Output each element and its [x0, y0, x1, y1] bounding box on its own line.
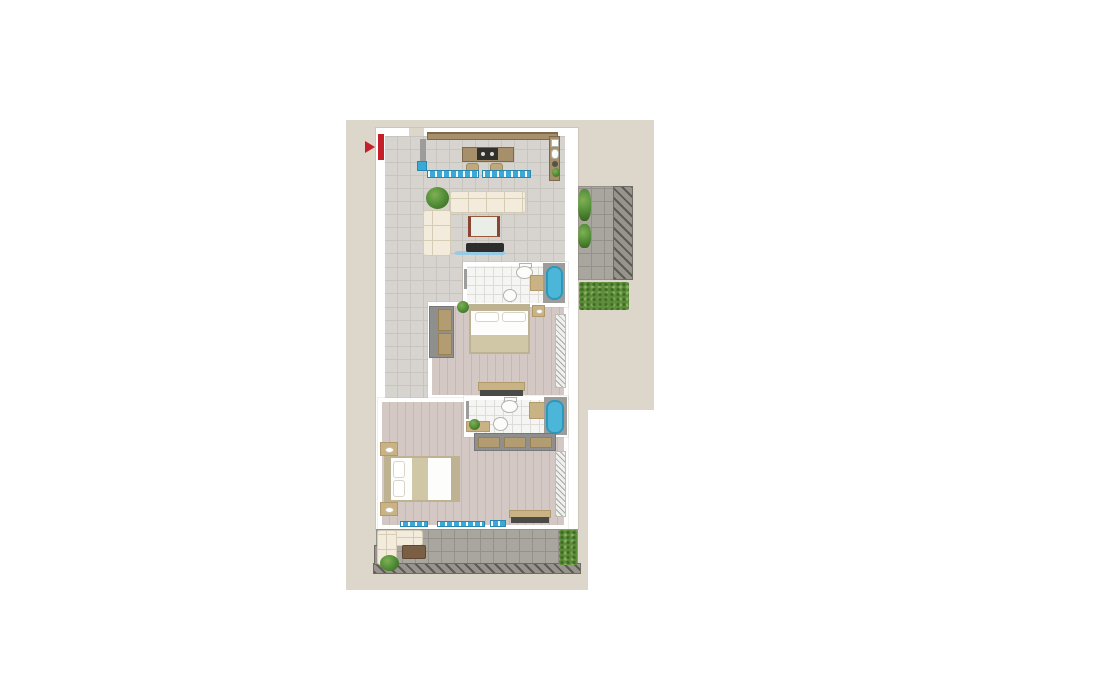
radiator: [555, 451, 566, 517]
bathroom2-door: [466, 401, 469, 419]
lamp-icon: [536, 309, 543, 314]
living-room-floor: [385, 266, 463, 306]
wardrobe-door: [438, 333, 452, 355]
blanket: [412, 458, 428, 500]
balcony-plant-icon: [578, 189, 591, 221]
kitchen-plant-icon: [552, 168, 560, 177]
sink-icon: [503, 289, 517, 302]
coffee-desk: [468, 216, 500, 237]
bedroom1-plant-icon: [457, 301, 469, 313]
bathtub-icon: [546, 400, 564, 434]
pillow: [393, 480, 405, 497]
lamp-icon: [385, 507, 394, 513]
sofa: [450, 191, 526, 213]
headboard: [386, 458, 391, 500]
toilet-icon: [501, 400, 518, 413]
window-glass: [400, 521, 428, 527]
kitchen-appliance-icon: [551, 139, 559, 147]
master-bench-front: [511, 517, 549, 523]
entrance-door-marker: [378, 134, 384, 160]
nightstand: [380, 502, 398, 516]
bathroom2-plant-icon: [469, 419, 480, 430]
floor-plan-canvas: [0, 0, 1096, 693]
master-bed: [384, 456, 460, 502]
glass-counter: [482, 170, 531, 178]
hallway-floor: [385, 306, 430, 398]
glass-counter: [427, 170, 479, 178]
sofa-2: [423, 210, 451, 256]
glass-counter-end: [417, 161, 427, 171]
wardrobe-door: [504, 437, 526, 448]
terrace-hedge: [559, 530, 577, 565]
terrace-plant-icon: [380, 555, 399, 571]
bedroom1-bench-front: [480, 390, 523, 396]
pillow: [475, 312, 499, 322]
window-glass: [490, 520, 506, 527]
kitchen-hob-icon: [552, 161, 558, 167]
wardrobe-door: [478, 437, 500, 448]
pillow: [502, 312, 526, 322]
terrace-table: [402, 545, 426, 559]
headboard: [471, 306, 528, 311]
bed-foot-board: [451, 458, 458, 500]
wardrobe-door: [530, 437, 552, 448]
burner-icon: [490, 152, 494, 156]
side-hedge: [579, 282, 629, 310]
burner-icon: [481, 152, 485, 156]
kitchen-wall-counter: [427, 132, 558, 140]
terrace-railing: [373, 563, 581, 574]
nightstand: [380, 442, 398, 456]
entrance-arrow-icon: [365, 141, 375, 153]
blanket: [471, 333, 528, 352]
window-glass: [437, 521, 485, 527]
wardrobe-door: [438, 309, 452, 331]
pillow: [393, 461, 405, 478]
balcony-railing: [613, 186, 633, 280]
living-plant-icon: [426, 187, 449, 209]
sink-icon: [493, 417, 508, 431]
bathroom1-door: [464, 269, 467, 289]
lamp-icon: [385, 447, 394, 453]
wall-pillar: [420, 139, 426, 162]
radiator: [555, 314, 566, 388]
bedroom1-bed: [469, 304, 530, 354]
stove-icon: [477, 148, 498, 160]
balcony-plant-icon: [578, 224, 591, 248]
tv-console: [466, 243, 504, 252]
kitchen-sink-icon: [551, 149, 559, 159]
bathtub-icon: [546, 266, 563, 300]
nightstand: [532, 305, 545, 317]
